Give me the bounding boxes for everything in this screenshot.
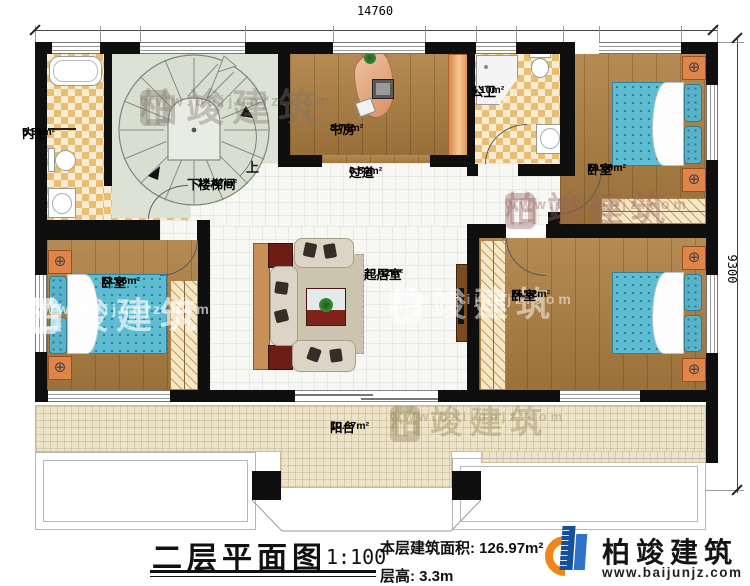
- window: [35, 275, 47, 352]
- extension-line: [333, 26, 334, 42]
- sliding-door-panel: [361, 398, 438, 400]
- toilet-public-bowl: [531, 58, 549, 78]
- sofa-left: [270, 266, 298, 346]
- dimension-value-top: 14760: [335, 4, 415, 18]
- floor-area-line: 本层建筑面积: 126.97m²: [380, 537, 543, 558]
- extension-line: [476, 26, 477, 42]
- side-table: [268, 243, 293, 268]
- balcony-pillar-left: [252, 471, 281, 500]
- wall: [35, 390, 48, 402]
- wardrobe-tr: [601, 198, 706, 224]
- wall: [104, 54, 112, 186]
- bed-br-pillow: [684, 274, 702, 311]
- brand-logo-tower2: [574, 534, 588, 570]
- bed-bl-pillow: [49, 276, 67, 313]
- sofa-cushion: [329, 348, 343, 363]
- nightstand: ⊕: [48, 356, 72, 380]
- wall: [278, 155, 322, 167]
- shower-drain: [484, 65, 488, 69]
- table-plant: [319, 298, 333, 312]
- wall: [197, 220, 210, 240]
- wall: [198, 240, 210, 402]
- wall: [438, 390, 560, 402]
- extension-line: [717, 26, 718, 42]
- brand-logo: [545, 524, 595, 582]
- window: [476, 42, 516, 54]
- window: [140, 42, 245, 54]
- plan-scale: 1:100: [326, 545, 386, 569]
- wall: [430, 155, 467, 167]
- extension-line: [599, 26, 600, 42]
- dimension-value-right: 9300: [725, 249, 739, 289]
- wall: [546, 224, 706, 238]
- wardrobe-bl: [170, 280, 198, 390]
- nightstand: ⊕: [48, 250, 72, 274]
- dimension-line-top: [35, 30, 718, 31]
- floor-height-line: 层高: 3.3m: [380, 565, 453, 586]
- extension-line: [245, 26, 246, 42]
- wall: [706, 160, 718, 275]
- brand-url: www.baijunjz.com: [602, 565, 743, 580]
- extension-line: [516, 26, 517, 42]
- nightstand: ⊕: [682, 358, 706, 382]
- wall: [35, 42, 47, 275]
- nightstand: ⊕: [682, 246, 706, 270]
- nightstand: ⊕: [682, 168, 706, 192]
- title-underline-thin: [150, 576, 376, 577]
- floor-height-label: 层高:: [380, 568, 415, 585]
- sofa-bottom: [292, 340, 356, 372]
- wall: [278, 42, 290, 163]
- floor-area-value: 126.97m²: [479, 540, 543, 557]
- wall: [706, 353, 718, 463]
- floor-area-label: 本层建筑面积:: [380, 540, 475, 557]
- wall: [560, 42, 575, 176]
- wall: [467, 238, 479, 390]
- bed-br-duvet: [652, 272, 684, 354]
- sofa-cushion: [323, 243, 337, 259]
- window: [52, 42, 100, 54]
- sliding-door: [295, 390, 438, 402]
- spiral-staircase: [112, 54, 278, 218]
- wardrobe-br: [480, 240, 506, 390]
- wall: [170, 390, 295, 402]
- wall: [100, 42, 140, 54]
- sofa-cushion: [274, 281, 289, 295]
- floor-plan-canvas: 上 下 ⊕ ⊕ ⊕ ⊕ ⊕ ⊕: [0, 0, 750, 586]
- bed-tr-duvet: [652, 82, 684, 166]
- extension-line: [100, 26, 101, 42]
- computer-screen: [376, 83, 390, 95]
- balcony-pillar-right: [452, 471, 481, 500]
- sliding-door-panel: [295, 394, 373, 396]
- floor-height-value: 3.3m: [419, 568, 453, 585]
- wall: [516, 42, 563, 54]
- nightstand: ⊕: [682, 56, 706, 80]
- tv-screen: [458, 288, 464, 324]
- wall: [467, 224, 506, 238]
- window: [560, 390, 640, 402]
- wall: [35, 220, 160, 240]
- bed-bl-duvet: [67, 274, 99, 354]
- wall: [467, 42, 475, 176]
- wall: [467, 164, 478, 176]
- bed-br-pillow2: [684, 315, 702, 352]
- extension-line: [563, 26, 564, 42]
- extension-line: [706, 490, 744, 491]
- wall: [706, 42, 718, 85]
- bed-tr-pillow2: [684, 126, 702, 164]
- extension-line: [681, 26, 682, 42]
- window: [706, 85, 718, 160]
- extension-line: [140, 26, 141, 42]
- extension-line: [425, 26, 426, 42]
- window: [48, 390, 170, 402]
- bed-bl-pillow2: [49, 317, 67, 354]
- window: [599, 42, 681, 54]
- wall: [548, 164, 560, 174]
- side-table: [268, 345, 293, 370]
- window: [706, 275, 718, 353]
- stair-up-label: 上: [246, 157, 259, 176]
- sink-public-basin: [540, 128, 560, 149]
- window: [333, 42, 425, 54]
- bed-tr-pillow: [684, 84, 702, 122]
- wall: [640, 390, 718, 402]
- title-underline-thick: [150, 570, 376, 573]
